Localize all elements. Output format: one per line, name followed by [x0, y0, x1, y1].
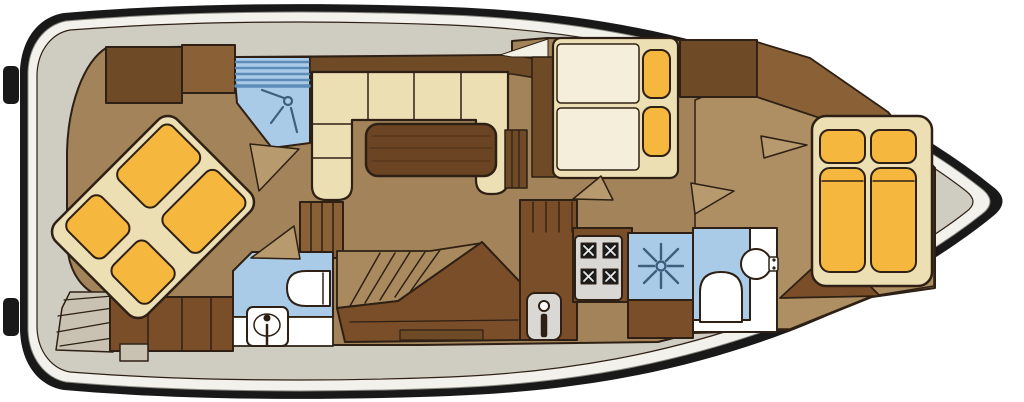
- berth-mattress: [557, 44, 639, 103]
- toilet-icon: [700, 272, 742, 322]
- dinette-table: [366, 124, 496, 176]
- boat-floor-plan-page: [0, 0, 1024, 402]
- berth-mattress: [557, 108, 639, 170]
- bow-fitting-bottom: [3, 298, 19, 336]
- galley-counter-aft: [628, 300, 693, 338]
- galley-sink-unit: [527, 293, 561, 340]
- aft-wardrobe: [680, 40, 757, 97]
- berth-mattress: [820, 168, 865, 272]
- faucet-dot: [772, 266, 775, 269]
- berth-pillow: [820, 130, 865, 163]
- counter-inset: [400, 330, 483, 340]
- berth-pillow: [643, 107, 670, 156]
- floor-plan: [0, 0, 1024, 402]
- bow-fitting-top: [3, 66, 19, 104]
- mid-cabinet-shape: [505, 130, 527, 188]
- faucet-dot: [772, 258, 775, 261]
- aft-bathroom: [693, 228, 778, 332]
- washbasin-icon: [741, 249, 771, 279]
- berth-pillow: [871, 130, 916, 163]
- berth-frame: [532, 57, 555, 177]
- midship-berths: [532, 38, 678, 178]
- mid-shower: [628, 233, 694, 300]
- fore-bathroom: [233, 252, 333, 346]
- faucet-icon: [539, 301, 549, 311]
- bow-cabinet-top-2: [182, 45, 235, 93]
- aft-double-berth: [812, 116, 932, 286]
- berth-pillow: [643, 50, 670, 98]
- bow-hatch: [120, 344, 148, 361]
- berth-mattress: [871, 168, 916, 272]
- faucet-icon: [264, 315, 271, 322]
- mid-cabinet: [505, 130, 527, 188]
- faucet-stem: [541, 314, 547, 337]
- bow-cabinet-top-1: [106, 47, 182, 103]
